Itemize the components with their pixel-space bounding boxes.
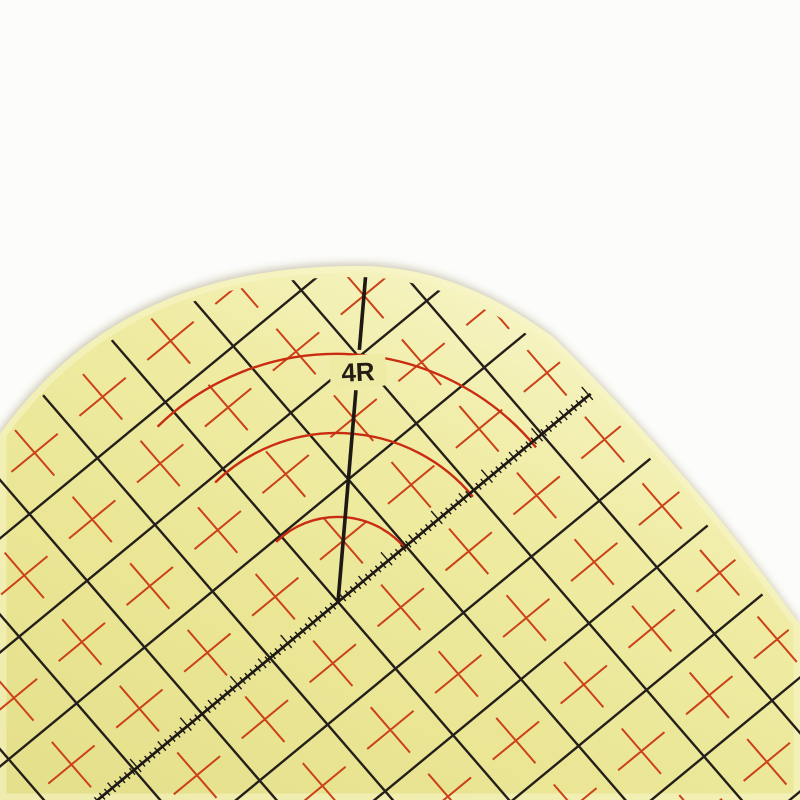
- arc-label-group: 4R: [329, 354, 387, 389]
- ruler-photo: 4R: [0, 0, 800, 800]
- photo-stage: 4R: [0, 0, 800, 800]
- arc-label: 4R: [341, 356, 376, 388]
